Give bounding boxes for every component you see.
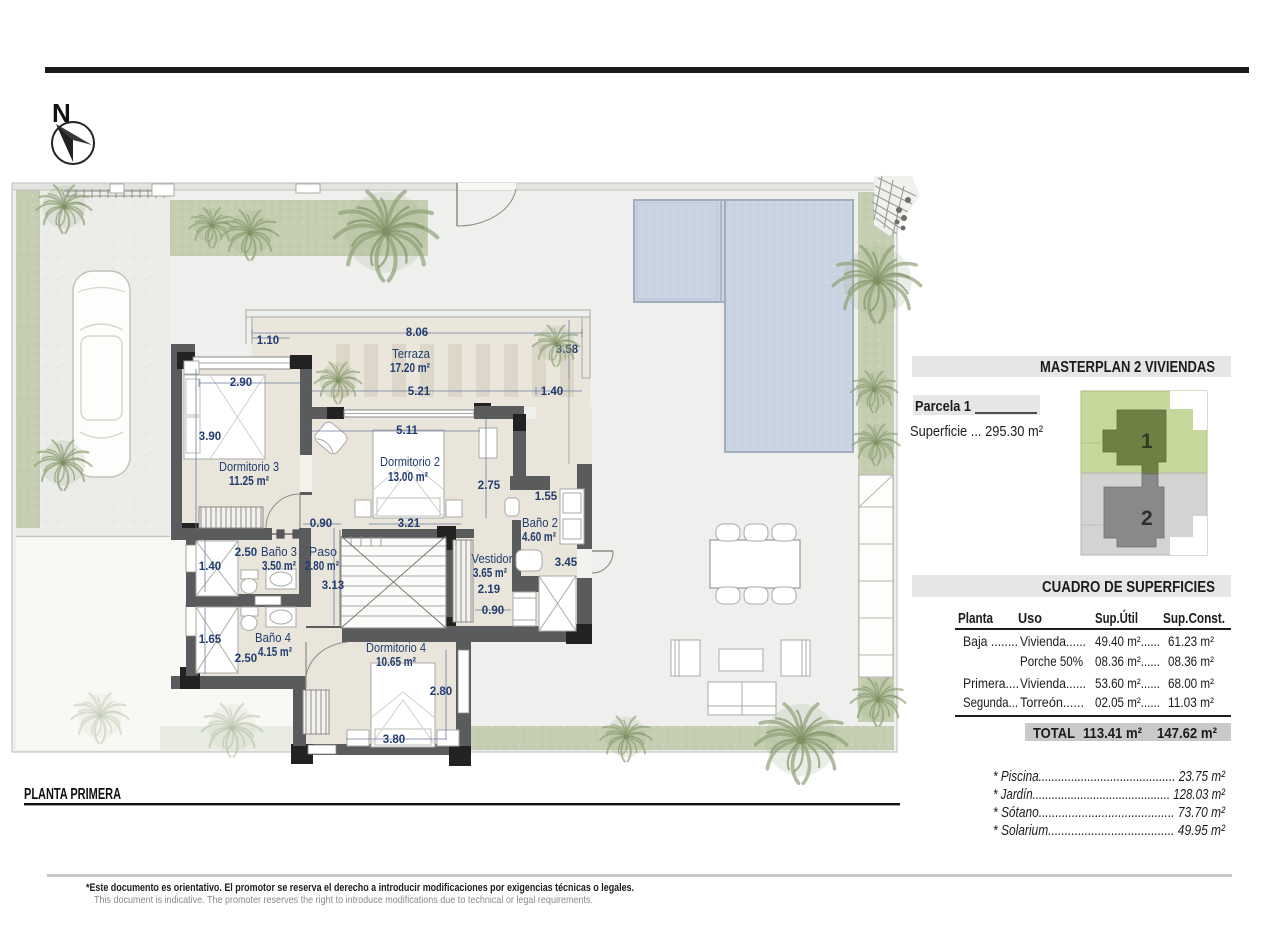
svg-text:Segunda...: Segunda... — [963, 694, 1018, 710]
svg-text:Vivienda......: Vivienda...... — [1020, 675, 1086, 691]
svg-text:Superficie ... 295.30 m²: Superficie ... 295.30 m² — [910, 423, 1043, 440]
svg-text:1.55: 1.55 — [535, 491, 558, 503]
svg-text:2.80: 2.80 — [430, 686, 452, 698]
svg-text:0.90: 0.90 — [482, 605, 504, 617]
svg-text:2: 2 — [1141, 507, 1153, 530]
svg-text:Dormitorio 3: Dormitorio 3 — [219, 460, 279, 474]
svg-text:Baja ........: Baja ........ — [963, 633, 1018, 649]
svg-text:2.50: 2.50 — [235, 547, 257, 559]
svg-text:Vivienda......: Vivienda...... — [1020, 633, 1086, 649]
svg-text:5.11: 5.11 — [396, 425, 418, 437]
svg-text:Porche 50%: Porche 50% — [1020, 653, 1083, 669]
svg-text:Paso: Paso — [309, 545, 337, 559]
svg-text:Planta: Planta — [958, 611, 994, 627]
svg-text:4.15 m²: 4.15 m² — [258, 645, 292, 659]
svg-text:4.60 m²: 4.60 m² — [522, 530, 556, 544]
svg-text:CUADRO DE SUPERFICIES: CUADRO DE SUPERFICIES — [1042, 579, 1215, 596]
svg-text:68.00 m²: 68.00 m² — [1168, 675, 1214, 691]
svg-text:2.80 m²: 2.80 m² — [305, 559, 339, 573]
svg-text:TOTAL: TOTAL — [1033, 725, 1075, 742]
svg-text:MASTERPLAN 2 VIVIENDAS: MASTERPLAN 2 VIVIENDAS — [1040, 359, 1215, 376]
svg-text:* Piscina.....................: * Piscina...............................… — [993, 768, 1226, 785]
svg-text:61.23 m²: 61.23 m² — [1168, 633, 1214, 649]
svg-text:8.06: 8.06 — [406, 327, 428, 339]
svg-text:02.05 m²......: 02.05 m²...... — [1095, 694, 1160, 710]
svg-text:This document is indicative. T: This document is indicative. The promote… — [94, 894, 593, 906]
svg-text:0.90: 0.90 — [310, 518, 332, 530]
svg-text:3.80: 3.80 — [383, 734, 405, 746]
svg-text:1.40: 1.40 — [541, 386, 563, 398]
svg-text:3.65 m²: 3.65 m² — [473, 566, 507, 580]
svg-text:08.36 m²: 08.36 m² — [1168, 653, 1214, 669]
svg-text:3.13: 3.13 — [322, 580, 344, 592]
svg-text:1.10: 1.10 — [257, 335, 279, 347]
svg-text:Sup.Útil: Sup.Útil — [1095, 609, 1138, 627]
svg-text:11.03 m²: 11.03 m² — [1168, 694, 1214, 710]
svg-text:113.41 m²: 113.41 m² — [1083, 725, 1142, 742]
svg-text:Dormitorio 2: Dormitorio 2 — [380, 455, 440, 469]
svg-text:Vestidor: Vestidor — [472, 552, 513, 566]
svg-text:Parcela 1: Parcela 1 — [915, 398, 971, 415]
svg-text:Baño 2: Baño 2 — [522, 516, 558, 530]
svg-text:3.21: 3.21 — [398, 518, 421, 530]
svg-text:Terraza: Terraza — [392, 347, 430, 361]
svg-text:Baño 4: Baño 4 — [255, 631, 291, 645]
svg-text:2.19: 2.19 — [478, 584, 500, 596]
svg-text:Dormitorio 4: Dormitorio 4 — [366, 641, 426, 655]
svg-text:* Sótano......................: * Sótano................................… — [993, 804, 1226, 821]
svg-text:Baño 3: Baño 3 — [261, 545, 297, 559]
svg-text:1: 1 — [1141, 430, 1153, 453]
svg-text:3.45: 3.45 — [555, 557, 578, 569]
svg-text:147.62 m²: 147.62 m² — [1157, 725, 1217, 742]
svg-text:5.21: 5.21 — [408, 386, 431, 398]
svg-text:1.65: 1.65 — [199, 634, 222, 646]
svg-text:2.50: 2.50 — [235, 653, 257, 665]
svg-text:* Solarium....................: * Solarium..............................… — [993, 822, 1226, 839]
svg-text:3.90: 3.90 — [199, 431, 221, 443]
svg-text:* Jardín......................: * Jardín................................… — [993, 786, 1226, 803]
svg-text:Primera....: Primera.... — [963, 675, 1019, 691]
svg-text:49.40 m²......: 49.40 m²...... — [1095, 633, 1160, 649]
svg-text:17.20 m²: 17.20 m² — [390, 361, 430, 375]
svg-text:11.25 m²: 11.25 m² — [229, 474, 269, 488]
svg-text:2.75: 2.75 — [478, 480, 501, 492]
svg-text:08.36 m²......: 08.36 m²...... — [1095, 653, 1160, 669]
svg-text:*Este documento es orientativo: *Este documento es orientativo. El promo… — [86, 882, 634, 894]
svg-text:3.50 m²: 3.50 m² — [262, 559, 296, 573]
svg-text:Sup.Const.: Sup.Const. — [1163, 611, 1225, 627]
svg-text:2.90: 2.90 — [230, 377, 252, 389]
svg-text:Torreón......: Torreón...... — [1020, 694, 1084, 710]
svg-text:13.00 m²: 13.00 m² — [388, 470, 428, 484]
svg-text:PLANTA PRIMERA: PLANTA PRIMERA — [24, 786, 121, 803]
svg-text:53.60 m²......: 53.60 m²...... — [1095, 675, 1160, 691]
svg-text:10.65 m²: 10.65 m² — [376, 655, 416, 669]
svg-text:Uso: Uso — [1018, 611, 1042, 627]
svg-text:1.40: 1.40 — [199, 561, 221, 573]
